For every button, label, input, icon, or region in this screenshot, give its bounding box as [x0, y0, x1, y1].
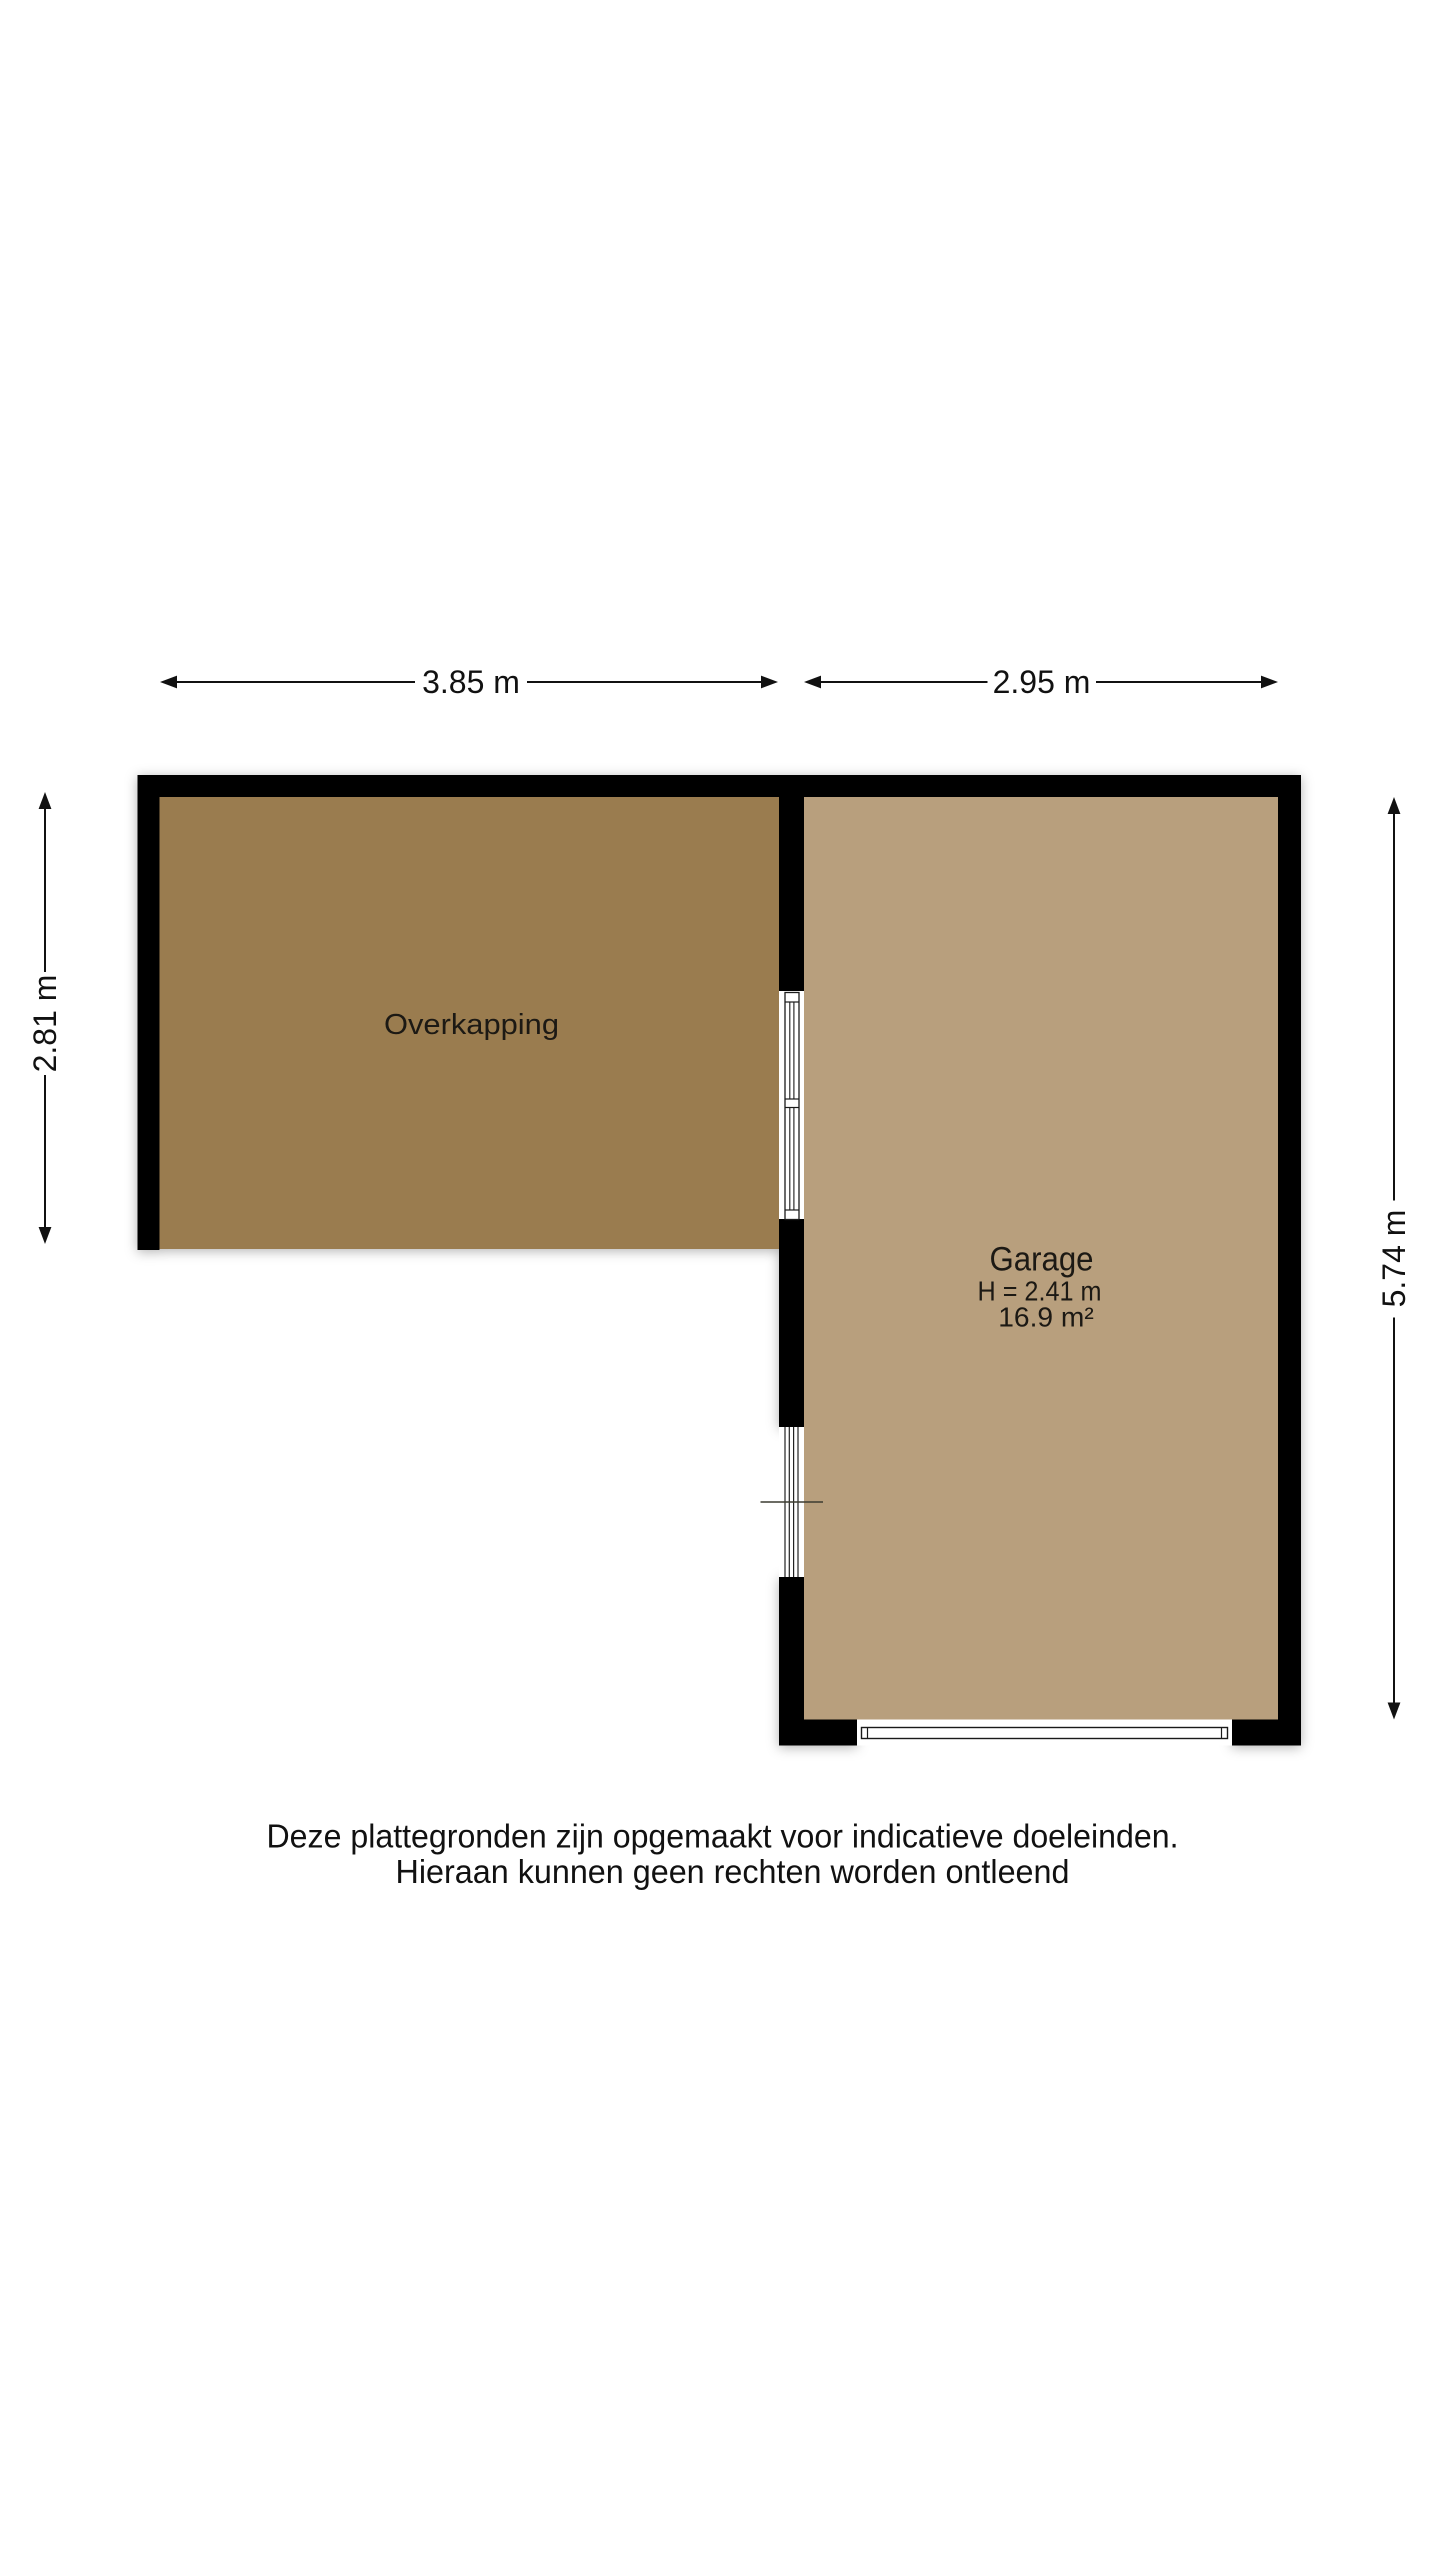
svg-text:Hieraan kunnen geen rechten wo: Hieraan kunnen geen rechten worden ontle… — [396, 1853, 1070, 1890]
svg-text:Deze plattegronden zijn opgema: Deze plattegronden zijn opgemaakt voor i… — [267, 1818, 1179, 1855]
svg-text:2.95 m: 2.95 m — [993, 664, 1091, 700]
svg-text:5.74 m: 5.74 m — [1376, 1210, 1412, 1308]
svg-text:Overkapping: Overkapping — [384, 1009, 559, 1041]
svg-text:Garage: Garage — [990, 1241, 1094, 1279]
svg-text:16.9 m²: 16.9 m² — [998, 1302, 1094, 1333]
svg-text:3.85 m: 3.85 m — [422, 664, 520, 700]
svg-text:2.81 m: 2.81 m — [27, 975, 63, 1073]
